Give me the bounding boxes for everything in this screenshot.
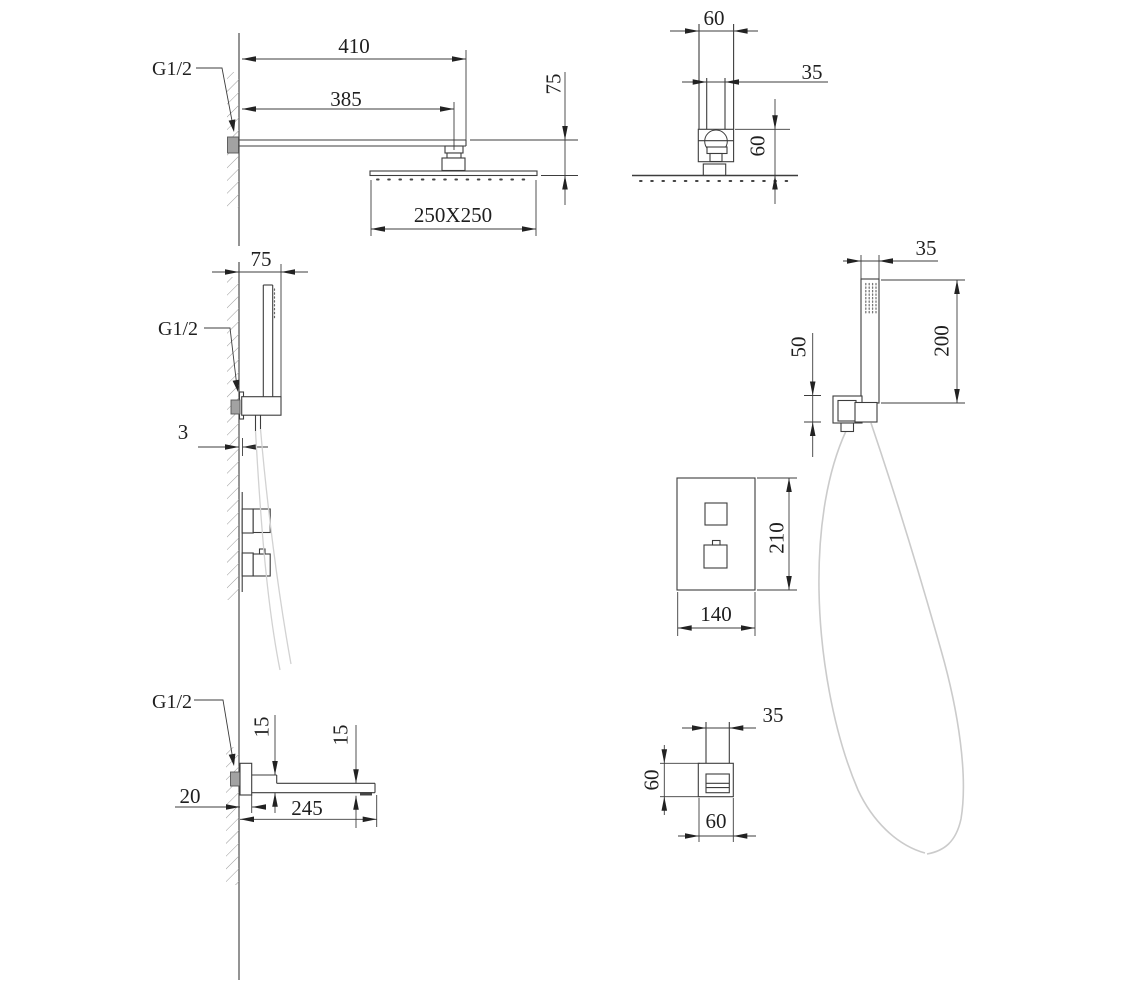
wall-section — [226, 262, 239, 980]
dim-15-inlet: 15 — [250, 715, 278, 813]
dim-60-width: 60 — [678, 798, 756, 842]
dim-210-plate: 210 — [757, 478, 797, 590]
hand-shower-handle — [861, 279, 879, 403]
spout-body — [240, 763, 375, 795]
dim-label-245: 245 — [291, 796, 323, 820]
view-hand-shower-front: 35 200 50 — [787, 236, 966, 854]
dim-label-210: 210 — [765, 522, 789, 554]
view-rain-shower-front: 60 35 60 — [632, 6, 828, 204]
spout-outlet — [360, 792, 372, 796]
dim-35-handle: 35 — [843, 236, 938, 279]
dim-label-60w: 60 — [704, 6, 725, 30]
view-spout-front: 35 60 60 — [640, 703, 784, 842]
dim-label-75: 75 — [542, 74, 566, 95]
dim-head-size: 250X250 — [371, 180, 536, 236]
shower-arm — [239, 140, 466, 146]
arm-front — [699, 24, 734, 129]
dim-label-385: 385 — [330, 87, 362, 111]
dim-3-plate: 3 — [178, 420, 268, 456]
thread-label: G1/2 — [152, 691, 192, 713]
thread-label: G1/2 — [158, 318, 198, 340]
dim-label-140: 140 — [700, 602, 732, 626]
rain-head — [370, 171, 537, 180]
mixer-handle-top — [705, 503, 727, 525]
dim-label-60j: 60 — [746, 136, 770, 157]
dim-35-width: 35 — [682, 60, 828, 85]
dim-200-handle: 200 — [881, 280, 965, 403]
dim-label-head-size: 250X250 — [414, 203, 492, 227]
hand-shower-handle — [263, 285, 274, 397]
shower-system-drawing: G1/2 410 — [0, 0, 1125, 1000]
dim-75-drop: 75 — [470, 72, 578, 205]
dim-label-20: 20 — [180, 784, 201, 808]
dim-label-3: 3 — [178, 420, 189, 444]
wall-union — [228, 137, 239, 153]
dim-35-tube: 35 — [682, 703, 784, 731]
thread-label: G1/2 — [152, 58, 192, 80]
view-spout-side: G1/2 15 15 — [152, 691, 377, 828]
mixer-handle-bottom — [704, 545, 727, 568]
view-mixer-front: 210 140 — [677, 478, 797, 636]
view-rain-shower-side: G1/2 410 — [152, 33, 578, 246]
dim-60-width: 60 — [670, 6, 758, 34]
dim-label-35t: 35 — [763, 703, 784, 727]
rain-head-edge — [632, 176, 798, 182]
dim-50-bracket: 50 — [787, 333, 822, 457]
head-connector — [442, 146, 465, 171]
technical-drawing-page: G1/2 410 — [0, 0, 1125, 1000]
dim-label-35w: 35 — [802, 60, 823, 84]
dim-75-offset: 75 — [212, 247, 308, 397]
swivel-joint — [698, 129, 733, 175]
dim-label-410: 410 — [338, 34, 370, 58]
dim-label-15b: 15 — [329, 725, 353, 746]
dim-label-75o: 75 — [251, 247, 272, 271]
dim-20-depth: 20 — [175, 784, 266, 813]
mixer-plate — [677, 478, 755, 590]
dim-60-height: 60 — [640, 745, 701, 815]
wall-union — [231, 772, 241, 786]
spout-plate-front — [698, 763, 733, 796]
view-hand-shower-side: 75 G1/2 3 — [158, 247, 308, 980]
dim-60-joint: 60 — [735, 99, 790, 204]
dim-label-50: 50 — [787, 337, 811, 358]
hand-shower-hose — [819, 423, 963, 854]
dim-label-60w: 60 — [706, 809, 727, 833]
dim-label-200: 200 — [930, 325, 954, 357]
dim-label-35h: 35 — [916, 236, 937, 260]
dim-15-outlet: 15 — [329, 725, 359, 829]
dim-label-15a: 15 — [250, 717, 274, 738]
dim-label-60h: 60 — [640, 770, 664, 791]
dim-140-plate: 140 — [678, 592, 755, 636]
